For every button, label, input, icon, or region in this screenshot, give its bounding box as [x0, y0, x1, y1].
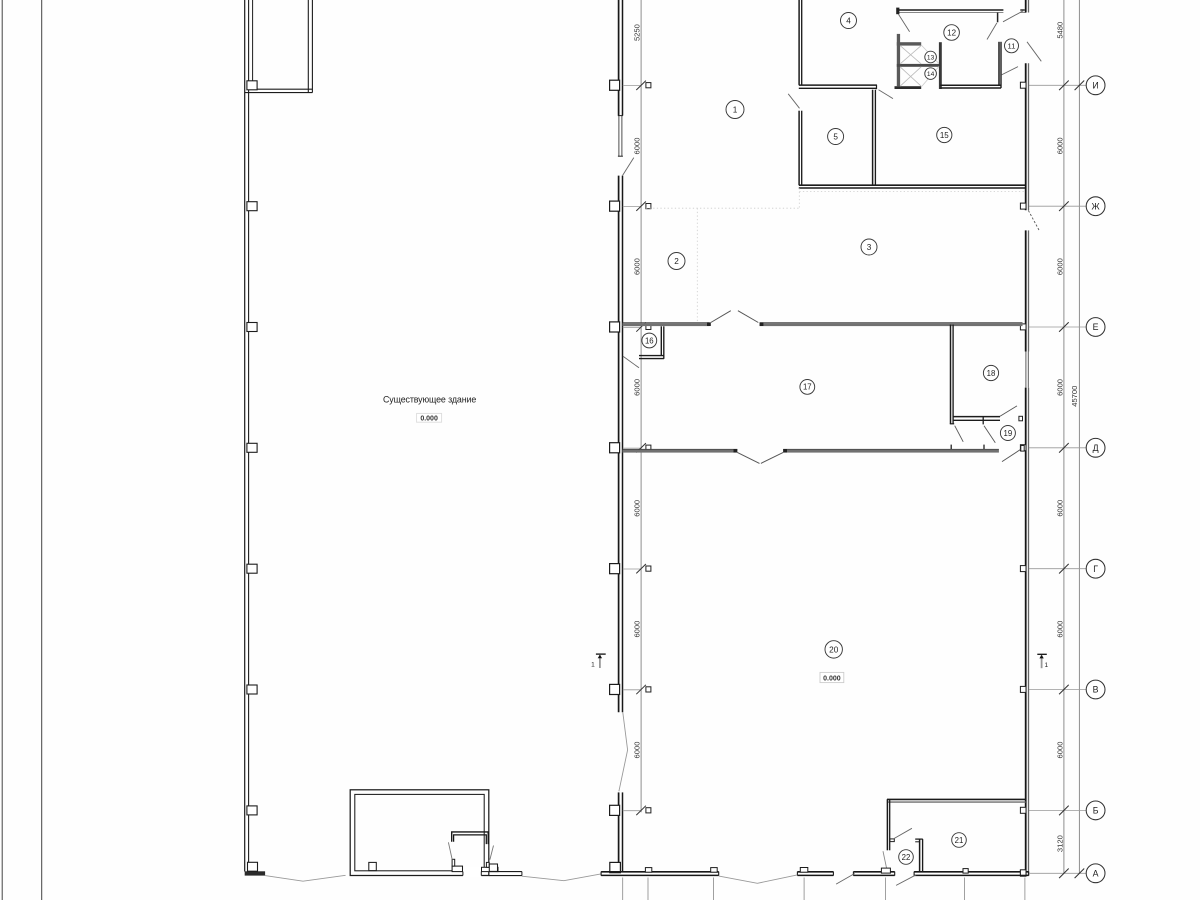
svg-text:Е: Е [1093, 322, 1099, 332]
svg-text:И: И [1092, 80, 1098, 90]
svg-text:6000: 6000 [1055, 742, 1064, 759]
svg-text:6000: 6000 [632, 258, 641, 275]
svg-text:6000: 6000 [1055, 137, 1064, 154]
svg-text:20: 20 [829, 645, 839, 654]
svg-text:3120: 3120 [1055, 835, 1064, 852]
svg-text:21: 21 [955, 836, 964, 845]
svg-text:1: 1 [733, 105, 738, 114]
svg-text:Существующее здание: Существующее здание [383, 395, 476, 405]
svg-text:6000: 6000 [632, 379, 641, 396]
svg-text:Г: Г [1093, 564, 1098, 574]
svg-text:В: В [1093, 685, 1099, 695]
svg-text:6000: 6000 [632, 742, 641, 759]
svg-text:5480: 5480 [1055, 22, 1064, 39]
svg-text:19: 19 [1004, 429, 1013, 438]
svg-text:1: 1 [591, 662, 595, 669]
svg-text:6000: 6000 [632, 621, 641, 638]
svg-text:12: 12 [947, 28, 956, 37]
svg-text:Ж: Ж [1092, 201, 1100, 211]
svg-text:16: 16 [645, 336, 654, 345]
svg-text:17: 17 [803, 383, 812, 392]
svg-text:6000: 6000 [632, 138, 641, 155]
svg-text:0.000: 0.000 [420, 416, 438, 423]
svg-text:13: 13 [927, 54, 935, 61]
svg-text:15: 15 [940, 131, 949, 140]
svg-text:14: 14 [927, 71, 935, 78]
svg-text:4: 4 [846, 16, 851, 25]
svg-text:1: 1 [1044, 662, 1048, 669]
svg-text:45700: 45700 [1070, 386, 1079, 407]
svg-text:5250: 5250 [632, 24, 641, 41]
svg-text:22: 22 [902, 853, 911, 862]
svg-text:6000: 6000 [1055, 621, 1064, 638]
svg-text:6000: 6000 [1055, 500, 1064, 517]
svg-text:6000: 6000 [1055, 258, 1064, 275]
svg-text:А: А [1093, 868, 1099, 878]
svg-text:18: 18 [987, 369, 996, 378]
svg-text:5: 5 [833, 132, 838, 141]
svg-text:2: 2 [674, 257, 679, 266]
svg-text:11: 11 [1008, 42, 1016, 51]
svg-text:3: 3 [867, 243, 872, 252]
svg-text:6000: 6000 [632, 500, 641, 517]
svg-text:0.000: 0.000 [823, 676, 841, 683]
svg-text:Б: Б [1093, 806, 1099, 816]
svg-text:6000: 6000 [1055, 379, 1064, 396]
svg-text:Д: Д [1093, 443, 1099, 453]
